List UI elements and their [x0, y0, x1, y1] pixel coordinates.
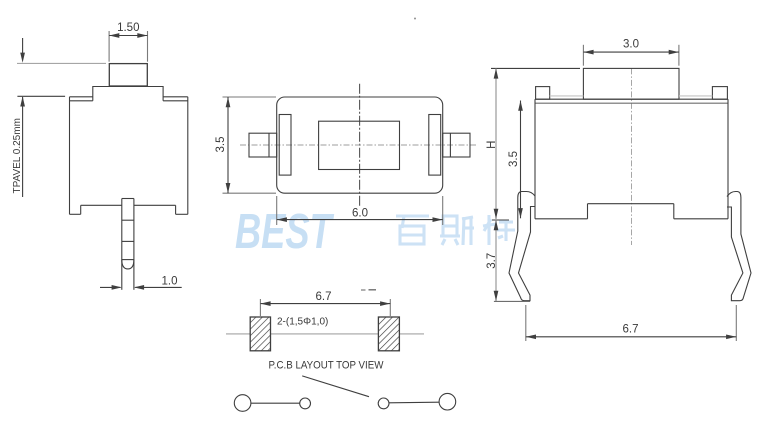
- svg-text:1.50: 1.50: [117, 22, 139, 34]
- svg-text:3.7: 3.7: [486, 253, 498, 269]
- svg-text:TPAVEL 0.25mm: TPAVEL 0.25mm: [12, 118, 23, 193]
- svg-text:3.0: 3.0: [623, 39, 639, 51]
- svg-text:2-(1,5Φ1,0): 2-(1,5Φ1,0): [277, 317, 328, 328]
- svg-text:6.7: 6.7: [623, 324, 639, 336]
- svg-text:H: H: [486, 141, 498, 149]
- svg-text:6.0: 6.0: [352, 208, 368, 220]
- svg-text:P.C.B LAYOUT TOP VIEW: P.C.B LAYOUT TOP VIEW: [269, 360, 385, 372]
- svg-text:3.5: 3.5: [508, 151, 520, 167]
- svg-text:1.0: 1.0: [162, 276, 178, 288]
- svg-text:3.5: 3.5: [215, 137, 227, 153]
- svg-text:BEST: BEST: [235, 205, 335, 260]
- svg-text:6.7: 6.7: [316, 291, 332, 303]
